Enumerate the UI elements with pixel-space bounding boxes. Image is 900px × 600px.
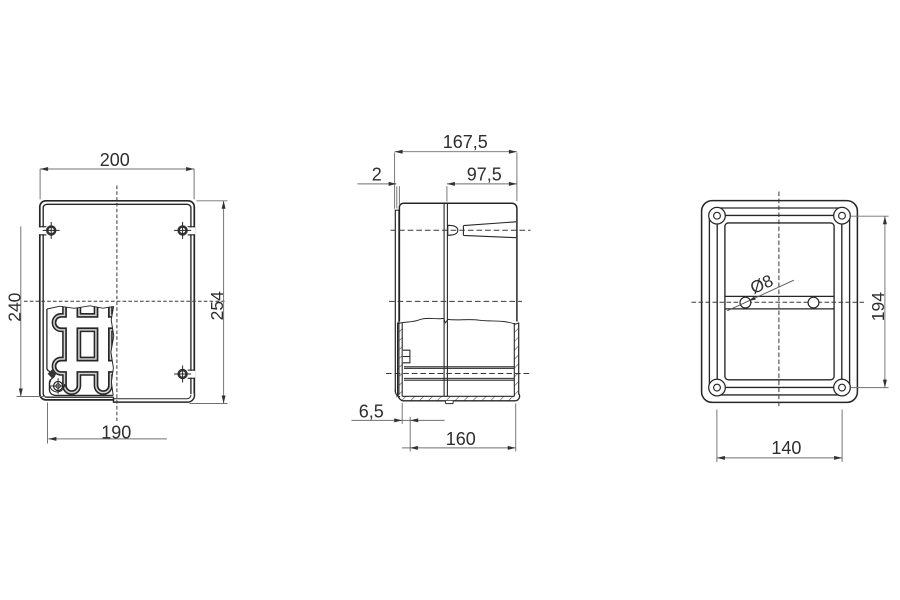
svg-text:97,5: 97,5 xyxy=(467,164,502,184)
svg-text:160: 160 xyxy=(446,429,476,449)
svg-text:190: 190 xyxy=(101,423,131,443)
svg-text:140: 140 xyxy=(771,438,801,458)
svg-text:6,5: 6,5 xyxy=(359,402,384,422)
svg-text:167,5: 167,5 xyxy=(443,132,488,152)
svg-text:2: 2 xyxy=(372,164,382,184)
svg-text:240: 240 xyxy=(4,292,24,321)
svg-text:254: 254 xyxy=(207,291,227,320)
svg-text:194: 194 xyxy=(868,292,888,321)
svg-text:200: 200 xyxy=(100,150,130,170)
